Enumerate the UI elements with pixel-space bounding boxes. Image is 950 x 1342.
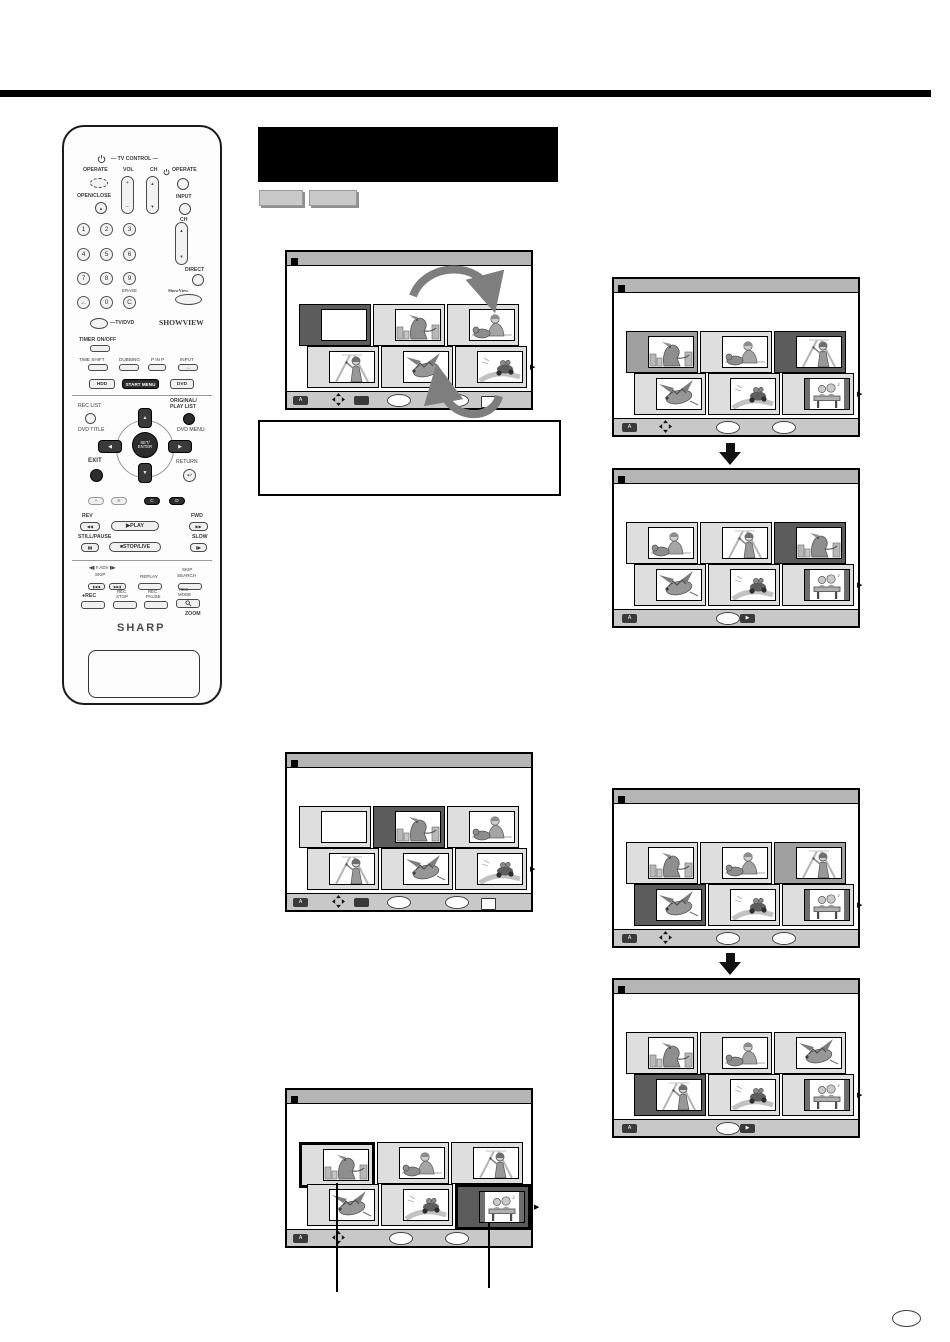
thumbnail-dinosaur xyxy=(648,336,694,368)
eject-icon: ▲ xyxy=(99,206,103,211)
rec-list-label: REC LIST xyxy=(78,404,101,410)
key-button-icon: ▶ xyxy=(740,1124,755,1133)
top-rule xyxy=(0,90,931,97)
thumbnail-cell-dragon xyxy=(381,848,453,890)
title-square-icon xyxy=(291,1096,298,1103)
cursor-down-button: ▼ xyxy=(138,463,152,483)
exit-label: EXIT xyxy=(88,458,102,465)
thumbnail-cell-bike xyxy=(381,1184,453,1226)
vol-plus: + xyxy=(122,180,133,186)
time-shift-button xyxy=(88,364,108,371)
thumbnail-row: ▶ xyxy=(307,346,535,388)
thumbnail-boydog xyxy=(469,309,515,341)
dvd-title-label: DVD TITLE xyxy=(78,428,104,434)
thumbnail-row xyxy=(626,522,846,564)
thumbnail-cell-blank xyxy=(299,304,371,346)
digit-3-button: 3 xyxy=(123,223,136,236)
key-button-icon: A xyxy=(622,1124,637,1133)
thumbnail-cell-bike xyxy=(455,346,527,388)
input-button xyxy=(179,203,191,215)
original-playlist-button xyxy=(183,413,195,425)
down-arrow-icon xyxy=(719,953,741,975)
next-page-arrow-icon: ▶ xyxy=(857,581,862,589)
return-label: RETURN xyxy=(176,460,198,466)
power-icon xyxy=(97,154,106,164)
thumbnail-bike xyxy=(730,889,776,921)
up-icon: ▲ xyxy=(143,415,148,421)
thumbnail-row xyxy=(299,806,519,848)
return-button: ↩ xyxy=(183,469,196,482)
screen-control-bar: A xyxy=(287,391,531,408)
tv-screen-edit-scene: ▶A xyxy=(285,250,533,410)
fadv-label: ◀▮ F.ADV ▮▶ xyxy=(89,566,115,571)
b-button: B xyxy=(111,497,127,505)
key-button-icon: ▶ xyxy=(740,614,755,623)
dpad-arrows-icon xyxy=(659,931,672,944)
thumbnail-blank xyxy=(321,811,367,843)
thumbnail-row: ♪▶ xyxy=(634,1074,862,1116)
power-icon xyxy=(163,168,170,176)
thumbnail-cell-dinosaur xyxy=(626,842,698,884)
thumbnail-dragon xyxy=(796,1037,842,1069)
play-button: ▶PLAY xyxy=(111,521,159,531)
screen-title-bar xyxy=(287,754,531,768)
timer-button xyxy=(90,345,110,352)
manual-page: OPERATE — TV CONTROL — VOL CH OPERATE + … xyxy=(0,0,950,1342)
dpad-arrows-icon xyxy=(332,393,345,406)
cursor-up-button: ▲ xyxy=(138,408,152,428)
thumbnail-cell-dragon xyxy=(634,373,706,415)
page-number-oval xyxy=(892,1310,921,1327)
thumbnail-cell-dinosaur xyxy=(774,522,846,564)
media-tag-button-1 xyxy=(259,190,303,206)
screen-control-bar: A▶ xyxy=(614,609,858,626)
thumbnail-cell-dragon xyxy=(634,884,706,926)
thumbnail-cell-woman xyxy=(774,842,846,884)
thumbnail-bike xyxy=(730,1079,776,1111)
thumbnail-cell-boydog xyxy=(377,1142,449,1184)
tv-screen-move-title-1: ♪▶A xyxy=(612,277,860,437)
thumbnail-bike xyxy=(730,378,776,410)
title-square-icon xyxy=(291,258,298,265)
thumbnail-row xyxy=(299,1142,523,1188)
dpad-arrows-icon xyxy=(332,895,345,908)
timer-label: TIMER ON/OFF xyxy=(79,338,116,344)
operate-button xyxy=(90,178,108,188)
left-icon: ◀ xyxy=(108,444,112,450)
thumbnail-dinosaur xyxy=(323,1149,369,1181)
thumbnail-row xyxy=(626,842,846,884)
screen-title-bar xyxy=(614,470,858,484)
cursor-right-button: ▶ xyxy=(168,440,192,453)
thumbnail-cell-dinosaur xyxy=(626,1032,698,1074)
rec-pause-label-2: PAUSE xyxy=(146,595,161,600)
thumbnail-bike xyxy=(730,569,776,601)
down-icon: ▼ xyxy=(143,470,148,476)
thumbnail-row: ▶ xyxy=(307,848,535,890)
thumbnail-cell-bench: ♪ xyxy=(782,1074,854,1116)
digit-1-button: 1 xyxy=(77,223,90,236)
key-button-icon: A xyxy=(622,934,637,943)
screen-control-bar: A▶ xyxy=(614,1119,858,1136)
set-enter-button-icon xyxy=(387,896,411,909)
magnifier-icon xyxy=(185,600,192,607)
set-enter-button-icon xyxy=(772,932,796,945)
thumbnail-dinosaur xyxy=(395,811,441,843)
thumbnail-cell-woman xyxy=(451,1142,523,1184)
input2-button: → xyxy=(178,364,198,371)
thumbnail-cell-woman xyxy=(307,346,379,388)
thumbnail-row xyxy=(626,331,846,373)
input2-label: INPUT xyxy=(180,357,194,362)
direct-label: DIRECT xyxy=(185,268,204,274)
still-pause-label: STILL/PAUSE xyxy=(78,535,111,541)
svg-text:♪: ♪ xyxy=(837,1083,840,1089)
screen-control-bar: A xyxy=(287,893,531,910)
thumbnail-bike xyxy=(403,1189,449,1221)
screen-control-bar: A xyxy=(614,929,858,946)
dpad-arrows-icon xyxy=(332,1231,345,1244)
next-page-arrow-icon: ▶ xyxy=(857,901,862,909)
skip-search-label-2: SEARCH xyxy=(177,573,196,578)
thumbnail-woman xyxy=(329,853,375,885)
digit-4-button: 4 xyxy=(77,248,90,261)
thumbnail-woman xyxy=(796,847,842,879)
remote-control: OPERATE — TV CONTROL — VOL CH OPERATE + … xyxy=(62,125,222,705)
rec-list-button xyxy=(85,413,96,424)
ch-up2-icon: ▲ xyxy=(176,228,187,233)
screen-title-bar xyxy=(614,980,858,994)
thumbnail-boydog xyxy=(722,1037,768,1069)
thumbnail-cell-dinosaur xyxy=(626,331,698,373)
c-button: C xyxy=(123,296,136,309)
key-button-icon: A xyxy=(293,1234,308,1243)
thumbnail-row: ♪▶ xyxy=(634,564,862,606)
input-label: INPUT xyxy=(176,195,192,201)
key-button-icon xyxy=(481,396,496,408)
p-in-p-label: P IN P xyxy=(151,357,164,362)
screen-title-bar xyxy=(614,279,858,293)
key-button-icon: A xyxy=(293,396,308,405)
rec-stop-label-2: STOP xyxy=(116,595,128,600)
thumbnail-dinosaur xyxy=(648,1037,694,1069)
thumbnail-dinosaur xyxy=(648,847,694,879)
digit-0-button: 0 xyxy=(100,296,113,309)
tv-operate-button xyxy=(177,178,189,190)
next-page-arrow-icon: ▶ xyxy=(857,390,862,398)
thumbnail-cell-bench: ♪ xyxy=(455,1184,531,1230)
thumbnail-cell-bike xyxy=(708,884,780,926)
thumbnail-woman xyxy=(329,351,375,383)
sharp-logo: SHARP xyxy=(117,622,166,634)
thumbnail-row xyxy=(626,1032,846,1074)
thumbnail-woman xyxy=(722,527,768,559)
remote-name-plate xyxy=(88,650,200,698)
thumbnail-cell-boydog xyxy=(447,304,519,346)
dpad-arrows-icon xyxy=(659,420,672,433)
operate-right-label: OPERATE xyxy=(172,168,197,174)
key-button-icon xyxy=(354,898,369,907)
next-page-arrow-icon: ▶ xyxy=(534,1203,539,1211)
thumbnail-bench: ♪ xyxy=(479,1191,525,1223)
thumbnail-cell-bike xyxy=(708,564,780,606)
thumbnail-row: ♪▶ xyxy=(634,373,862,415)
thumbnail-cell-dragon xyxy=(634,564,706,606)
set-enter-button-icon xyxy=(716,612,740,625)
next-page-arrow-icon: ▶ xyxy=(530,865,535,873)
showview-button xyxy=(175,294,202,305)
ch-updown-button: ▲ ▼ xyxy=(175,222,188,265)
thumbnail-boydog xyxy=(469,811,515,843)
direct-button xyxy=(192,274,204,286)
still-pause-button: ▮▮ xyxy=(81,543,99,552)
digit-8-button: 8 xyxy=(100,272,113,285)
title-square-icon xyxy=(618,285,625,292)
tv-screen-edit-scene-2: ▶A xyxy=(285,752,533,912)
thumbnail-cell-dragon xyxy=(307,1184,379,1226)
showview-logo: SHOWVIEW xyxy=(159,319,204,327)
key-button-icon: A xyxy=(293,898,308,907)
key-button-icon: A xyxy=(622,423,637,432)
thumbnail-cell-boydog xyxy=(447,806,519,848)
tv-screen-move-title-2: ♪▶A▶ xyxy=(612,468,860,628)
screen-control-bar: A xyxy=(287,1229,531,1246)
thumbnail-cell-dinosaur xyxy=(373,304,445,346)
thumbnail-boydog xyxy=(722,847,768,879)
svg-text:♪: ♪ xyxy=(837,893,840,899)
thumbnail-dragon xyxy=(656,889,702,921)
screen-title-bar xyxy=(287,252,531,266)
thumbnail-dragon xyxy=(656,378,702,410)
screen-title-bar xyxy=(614,790,858,804)
thumbnail-dragon xyxy=(403,351,449,383)
thumbnail-woman xyxy=(796,336,842,368)
tv-dvd-button xyxy=(90,318,108,329)
input-arrow-icon: → xyxy=(186,365,191,371)
svg-text:♪: ♪ xyxy=(837,382,840,388)
channel-rocker: ▲ ▼ xyxy=(146,176,159,214)
slow-label: SLOW xyxy=(192,535,208,541)
forward-button: ▶▶ xyxy=(189,522,208,531)
thumbnail-cell-woman xyxy=(700,522,772,564)
c-color-button: C xyxy=(144,497,160,505)
thumbnail-cell-bench: ♪ xyxy=(782,564,854,606)
key-button-icon: A xyxy=(622,614,637,623)
callout-line-right xyxy=(488,1222,490,1288)
ch-down2-icon: ▼ xyxy=(176,254,187,259)
exit-button xyxy=(90,469,103,482)
skip-back-button: ▮◀◀ xyxy=(88,583,105,590)
thumbnail-bike xyxy=(477,351,523,383)
skip-search-label-1: SKIP xyxy=(182,567,192,572)
thumbnail-woman xyxy=(656,1079,702,1111)
tv-screen-move-scene-2: ♪▶A▶ xyxy=(612,978,860,1138)
set-enter-button-icon xyxy=(445,1232,469,1245)
thumbnail-cell-bike xyxy=(455,848,527,890)
a-button: A xyxy=(88,497,104,505)
thumbnail-cell-dragon xyxy=(381,346,453,388)
thumbnail-cell-woman xyxy=(774,331,846,373)
rec-button xyxy=(81,601,105,609)
tv-dvd-label: —TV/DVD xyxy=(110,321,134,327)
thumbnail-bench: ♪ xyxy=(804,569,850,601)
showview-key-label: ShowView xyxy=(168,288,189,293)
title-banner xyxy=(258,127,558,182)
screen-control-bar: A xyxy=(614,418,858,435)
title-square-icon xyxy=(291,760,298,767)
set-enter-button-icon xyxy=(445,896,469,909)
stop-live-button: ■STOP/LIVE xyxy=(109,542,161,552)
replay-label: REPLAY xyxy=(140,574,158,579)
media-tag-button-2 xyxy=(309,190,357,206)
thumbnail-boydog xyxy=(648,527,694,559)
thumbnail-cell-bike xyxy=(708,1074,780,1116)
set-enter-button-icon xyxy=(716,421,740,434)
tv-screen-scene-callout: ♪▶A xyxy=(285,1088,533,1248)
operate-label: OPERATE xyxy=(83,168,108,174)
thumbnail-dinosaur xyxy=(796,527,842,559)
fwd-label: FWD xyxy=(191,514,203,520)
thumbnail-bench: ♪ xyxy=(804,378,850,410)
key-button-icon xyxy=(481,898,496,910)
thumbnail-cell-bench: ♪ xyxy=(782,884,854,926)
title-square-icon xyxy=(618,986,625,993)
open-close-label: OPEN/CLOSE xyxy=(77,194,111,200)
rec-pause-button xyxy=(144,601,168,609)
rec-stop-button xyxy=(113,601,137,609)
thumbnail-bench: ♪ xyxy=(804,889,850,921)
set-enter-button-icon xyxy=(716,932,740,945)
thumbnail-cell-bench: ♪ xyxy=(782,373,854,415)
thumbnail-boydog xyxy=(722,336,768,368)
thumbnail-cell-boydog xyxy=(700,842,772,884)
digit-2-button: 2 xyxy=(100,223,113,236)
vol-minus: − xyxy=(122,204,133,210)
p-in-p-button xyxy=(148,364,166,371)
dubbing-button xyxy=(119,364,139,371)
cursor-left-button: ◀ xyxy=(98,440,122,453)
ch-label: CH xyxy=(150,168,158,174)
set-enter-button-icon xyxy=(389,1232,413,1245)
rec-mode-button xyxy=(176,599,200,608)
enter-label: ENTER xyxy=(138,445,152,449)
next-page-arrow-icon: ▶ xyxy=(857,1091,862,1099)
thumbnail-cell-blank xyxy=(299,806,371,848)
thumbnail-cell-boydog xyxy=(626,522,698,564)
slow-button: ▮▶ xyxy=(190,543,207,552)
thumbnail-bench: ♪ xyxy=(804,1079,850,1111)
set-enter-button-icon xyxy=(445,394,469,407)
thumbnail-cell-woman xyxy=(634,1074,706,1116)
tv-screen-move-scene-1: ♪▶A xyxy=(612,788,860,948)
thumbnail-cell-boydog xyxy=(700,331,772,373)
thumbnail-cell-bike xyxy=(708,373,780,415)
start-menu-button: START MENU xyxy=(122,379,159,389)
next-page-arrow-icon: ▶ xyxy=(530,363,535,371)
thumbnail-blank xyxy=(321,309,367,341)
vol-label: VOL xyxy=(123,168,134,174)
thumbnail-dragon xyxy=(656,569,702,601)
set-enter-button-icon xyxy=(387,394,411,407)
section-divider xyxy=(72,560,212,561)
thumbnail-bike xyxy=(477,853,523,885)
rev-label: REV xyxy=(82,514,93,520)
thumbnail-row: ♪▶ xyxy=(307,1184,539,1230)
thumbnail-row xyxy=(299,304,519,346)
thumbnail-cell-dinosaur xyxy=(373,806,445,848)
thumbnail-dinosaur xyxy=(395,309,441,341)
thumbnail-cell-dinosaur xyxy=(299,1142,375,1188)
dvd-button: DVD xyxy=(170,379,194,389)
note-box xyxy=(258,420,561,496)
ch-down-icon: ▼ xyxy=(147,204,158,209)
play-list-label: PLAY LIST xyxy=(170,405,196,411)
svg-text:♪: ♪ xyxy=(512,1195,515,1201)
set-enter-button-icon xyxy=(772,421,796,434)
title-square-icon xyxy=(618,796,625,803)
set-enter-button: SET/ ENTER xyxy=(132,432,158,458)
rec-mode-label-2: MODE xyxy=(178,593,191,598)
thumbnail-boydog xyxy=(399,1147,445,1179)
hdd-button: HDD xyxy=(89,379,115,389)
digit-9-button: 9 xyxy=(123,272,136,285)
set-enter-button-icon xyxy=(716,1122,740,1135)
skip-label: SKIP xyxy=(95,572,105,577)
time-shift-label: TIME SHIFT xyxy=(79,357,105,362)
dvd-menu-label: DVD MENU xyxy=(177,428,205,434)
screen-title-bar xyxy=(287,1090,531,1104)
thumbnail-cell-dragon xyxy=(774,1032,846,1074)
zoom-label: ZOOM xyxy=(185,612,201,618)
callout-line-left xyxy=(336,1183,338,1292)
open-close-button: ▲ xyxy=(95,202,107,214)
svg-text:♪: ♪ xyxy=(837,573,840,579)
title-square-icon xyxy=(618,476,625,483)
volume-rocker: + − xyxy=(121,176,134,214)
thumbnail-row: ♪▶ xyxy=(634,884,862,926)
digit-5-button: 5 xyxy=(100,248,113,261)
d-button: D xyxy=(169,497,185,505)
key-button-icon xyxy=(354,396,369,405)
rewind-button: ◀◀ xyxy=(80,522,100,531)
digit-6-button: 6 xyxy=(123,248,136,261)
return-icon: ↩ xyxy=(187,472,192,479)
thumbnail-cell-woman xyxy=(307,848,379,890)
thumbnail-woman xyxy=(473,1147,519,1179)
digit-7-button: 7 xyxy=(77,272,90,285)
down-arrow-icon xyxy=(719,443,741,465)
rec-label: ●REC xyxy=(82,594,96,600)
thumbnail-cell-boydog xyxy=(700,1032,772,1074)
section-divider xyxy=(72,395,212,396)
right-icon: ▶ xyxy=(178,444,182,450)
thumbnail-dragon xyxy=(403,853,449,885)
tv-control-label: — TV CONTROL — xyxy=(111,157,158,163)
dubbing-label: DUBBING xyxy=(119,357,140,362)
dash-button: -/-- xyxy=(77,296,90,309)
erase-label: ERASE xyxy=(122,289,137,294)
ch-up-icon: ▲ xyxy=(147,181,158,186)
